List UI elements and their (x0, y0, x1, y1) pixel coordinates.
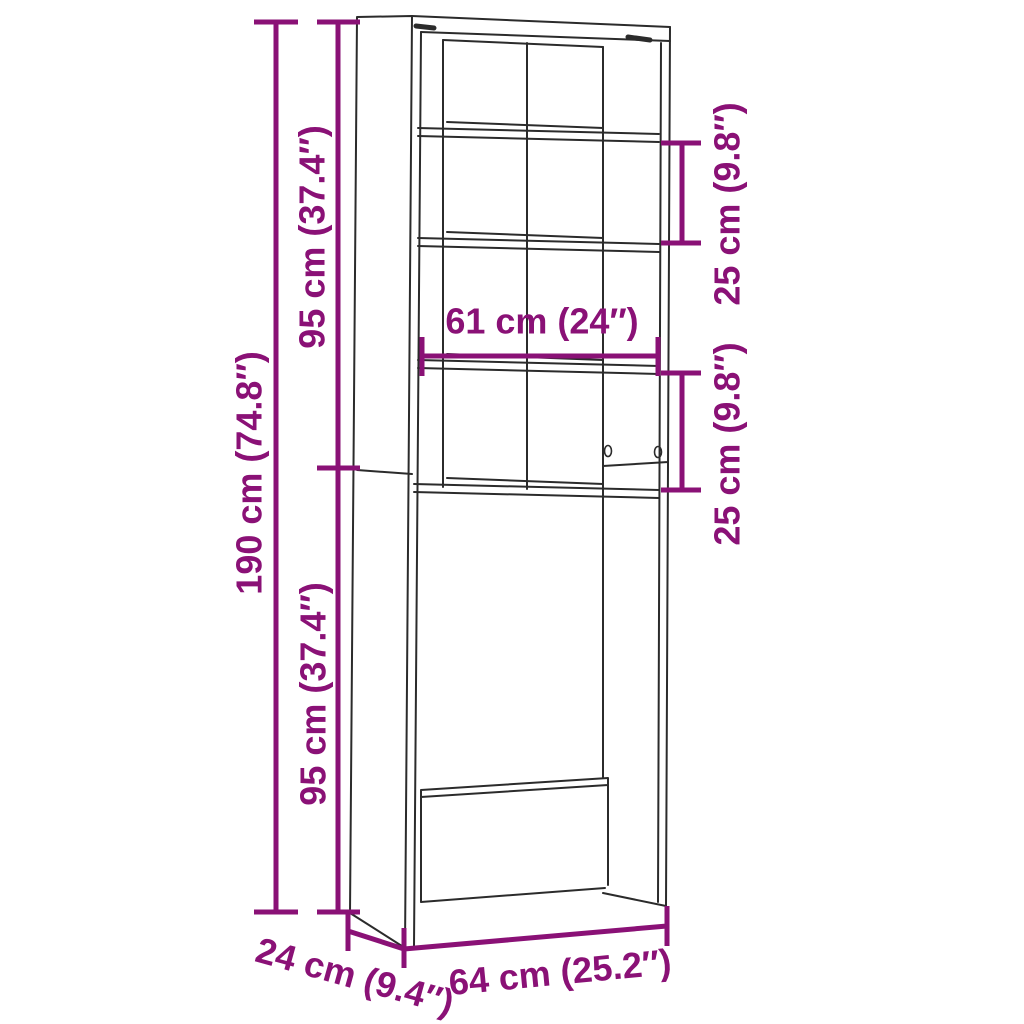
cabinet-right-panel (603, 27, 670, 906)
label-inner-width: 61 cm (24″) (445, 301, 638, 342)
label-upper-shelf-spacing: 25 cm (9.8″) (707, 102, 748, 305)
dim-line-upper-shelf-spacing (661, 143, 701, 243)
shelf-pin-hole-left (605, 446, 612, 457)
label-depth: 24 cm (9.4″) (252, 929, 459, 1023)
cabinet-drawing (350, 16, 670, 948)
label-overall-height: 190 cm (74.8″) (229, 351, 270, 594)
cabinet-dimension-diagram: 95 cm (37.4″) 190 cm (74.8″) 95 cm (37.4… (0, 0, 1024, 1024)
cabinet-shelf-1 (418, 122, 659, 142)
dim-line-overall-width (404, 906, 667, 949)
label-overall-width: 64 cm (25.2″) (447, 941, 673, 1003)
cabinet-shelf-2 (418, 232, 659, 252)
cabinet-back-seams (443, 40, 527, 489)
label-lower-section-height: 95 cm (37.4″) (293, 582, 334, 805)
diagram-canvas: 95 cm (37.4″) 190 cm (74.8″) 95 cm (37.4… (0, 0, 1024, 1024)
label-middle-shelf-spacing: 25 cm (9.8″) (707, 342, 748, 545)
cabinet-left-panel (350, 16, 421, 948)
cabinet-top-panel (412, 16, 670, 47)
cabinet-mid-divider (414, 478, 659, 498)
cabinet-lower-back-panel (421, 778, 608, 902)
label-upper-section-height: 95 cm (37.4″) (292, 125, 333, 348)
